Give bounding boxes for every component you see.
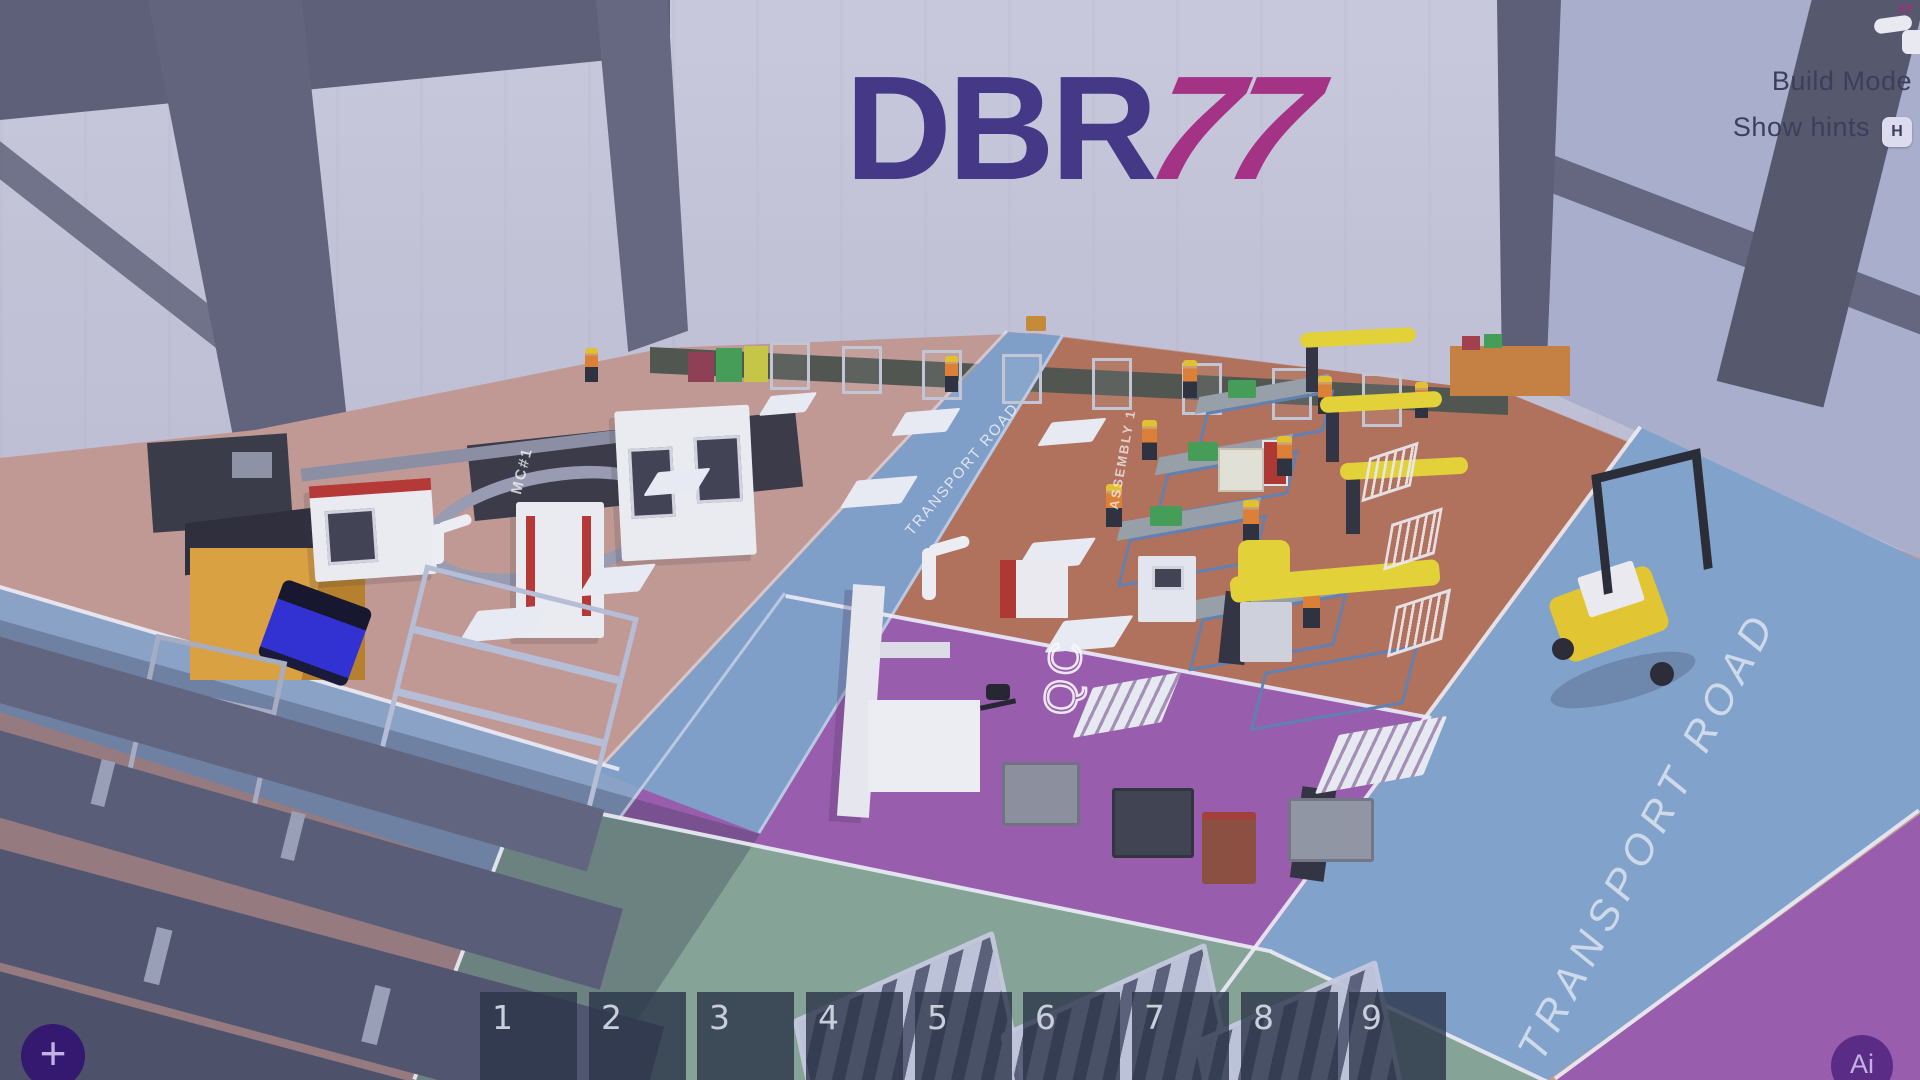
forklift-wheel — [1552, 638, 1574, 660]
slot-number: 3 — [709, 998, 730, 1037]
add-button-label: + — [40, 1027, 67, 1079]
gantry-frame[interactable] — [770, 342, 810, 390]
hotbar: 1 2 3 4 5 6 7 8 9 — [480, 992, 1450, 1080]
bin-green[interactable] — [1228, 380, 1256, 398]
robot-pedestal — [1346, 474, 1360, 534]
hotbar-slot-1[interactable]: 1 — [480, 992, 577, 1080]
crate-stack-green[interactable] — [716, 348, 742, 382]
bin-green[interactable] — [1150, 506, 1182, 526]
slot-number: 5 — [927, 998, 948, 1037]
hotbar-slot-5[interactable]: 5 — [915, 992, 1012, 1080]
robot-pedestal — [1326, 406, 1339, 462]
worker[interactable] — [945, 356, 958, 392]
office-chair[interactable] — [986, 684, 1010, 700]
ai-button-label: Ai — [1850, 1049, 1874, 1079]
bin-brown[interactable] — [1202, 812, 1256, 884]
floor-stencil-qc: QC — [1032, 635, 1094, 717]
cart-gray[interactable] — [1288, 798, 1374, 862]
hotbar-slot-9[interactable]: 9 — [1349, 992, 1446, 1080]
logo-text-primary: DBR — [845, 46, 1154, 211]
hints-keycap: H — [1882, 117, 1912, 147]
slot-number: 7 — [1144, 998, 1165, 1037]
monitor — [1152, 566, 1184, 590]
cabinet-red-white[interactable] — [1000, 560, 1068, 618]
machine-red-trim — [582, 516, 591, 616]
cart-dark[interactable] — [1112, 788, 1194, 858]
gantry-frame[interactable] — [1092, 358, 1132, 410]
worker[interactable] — [1243, 500, 1259, 543]
hotbar-slot-3[interactable]: 3 — [697, 992, 794, 1080]
add-object-button[interactable]: + — [21, 1024, 85, 1080]
hotbar-slot-4[interactable]: 4 — [806, 992, 903, 1080]
slot-number: 2 — [601, 998, 622, 1037]
dbr77-wall-logo: DBR77 — [845, 55, 1310, 203]
machine-small-gray[interactable] — [232, 452, 272, 478]
build-mode-label: Build Mode — [1772, 66, 1912, 97]
qc-partition[interactable] — [868, 700, 980, 792]
hotbar-slot-6[interactable]: 6 — [1023, 992, 1120, 1080]
gantry-frame[interactable] — [842, 346, 882, 394]
crate-small-red[interactable] — [1462, 336, 1480, 350]
buffer-rack-orange[interactable] — [1450, 346, 1570, 396]
slot-number: 4 — [818, 998, 839, 1037]
forklift-wheel — [1650, 662, 1674, 686]
robot-yellow-shoulder[interactable] — [1238, 540, 1290, 592]
slot-number: 9 — [1361, 998, 1382, 1037]
factory-3d-viewport[interactable]: DBR77 — [0, 0, 1920, 1080]
show-hints-toggle[interactable]: Show hintsH — [1733, 112, 1912, 147]
crate-stack-red[interactable] — [688, 352, 714, 382]
show-hints-label: Show hints — [1733, 112, 1870, 142]
bin-green[interactable] — [1188, 442, 1218, 461]
hotbar-slot-8[interactable]: 8 — [1241, 992, 1338, 1080]
agv-small[interactable] — [1026, 316, 1046, 331]
worker[interactable] — [1183, 360, 1197, 398]
parts-board[interactable] — [1218, 448, 1264, 492]
cabinet-gray[interactable] — [1240, 602, 1292, 662]
slot-number: 8 — [1253, 998, 1274, 1037]
hotbar-slot-7[interactable]: 7 — [1132, 992, 1229, 1080]
cart-gray[interactable] — [1002, 762, 1080, 826]
crate-stack-yellow[interactable] — [744, 346, 768, 382]
corner-badge[interactable] — [1902, 30, 1920, 54]
machine-window — [325, 508, 379, 565]
qc-desk[interactable] — [880, 642, 950, 658]
gantry-frame[interactable] — [1002, 354, 1042, 404]
worker[interactable] — [585, 348, 598, 382]
logo-text-accent: 77 — [1138, 55, 1326, 203]
worker[interactable] — [1277, 436, 1292, 476]
robot-pedestal — [1306, 340, 1318, 392]
crate-small-green[interactable] — [1484, 334, 1502, 348]
slot-number: 6 — [1035, 998, 1056, 1037]
slot-number: 1 — [492, 998, 513, 1037]
worker[interactable] — [1142, 420, 1157, 460]
cnc-machine[interactable] — [309, 478, 437, 582]
hotbar-slot-2[interactable]: 2 — [589, 992, 686, 1080]
